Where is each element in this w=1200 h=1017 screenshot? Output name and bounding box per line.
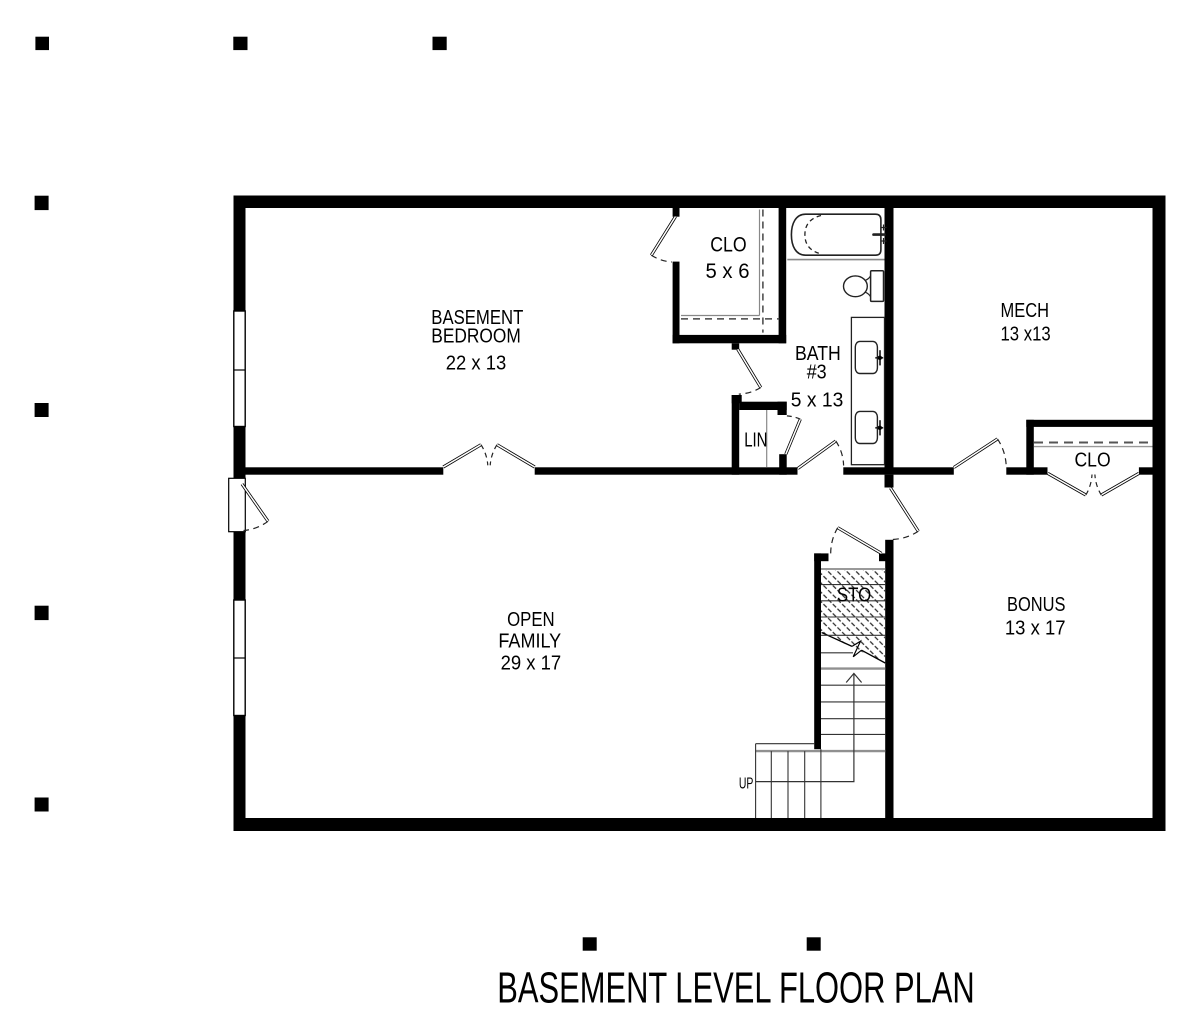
svg-text:#3: #3 [807,361,827,383]
svg-text:FAMILY: FAMILY [498,631,561,653]
svg-text:22 x 13: 22 x 13 [446,353,507,375]
svg-text:BEDROOM: BEDROOM [431,326,521,348]
svg-text:BASEMENT LEVEL FLOOR PLAN: BASEMENT LEVEL FLOOR PLAN [497,963,974,1012]
svg-text:MECH: MECH [1001,300,1050,322]
svg-text:STO: STO [837,585,871,607]
svg-text:LIN: LIN [744,430,767,452]
svg-text:13 x13: 13 x13 [1001,324,1051,346]
svg-text:5 x 13: 5 x 13 [791,390,844,412]
svg-text:13 x 17: 13 x 17 [1005,618,1066,640]
svg-text:OPEN: OPEN [507,609,555,631]
svg-text:29 x 17: 29 x 17 [501,652,562,674]
svg-text:5 x 6: 5 x 6 [706,260,750,283]
svg-text:CLO: CLO [1075,450,1111,472]
svg-text:UP: UP [739,776,754,793]
svg-text:CLO: CLO [710,233,746,256]
svg-text:BONUS: BONUS [1007,594,1066,616]
